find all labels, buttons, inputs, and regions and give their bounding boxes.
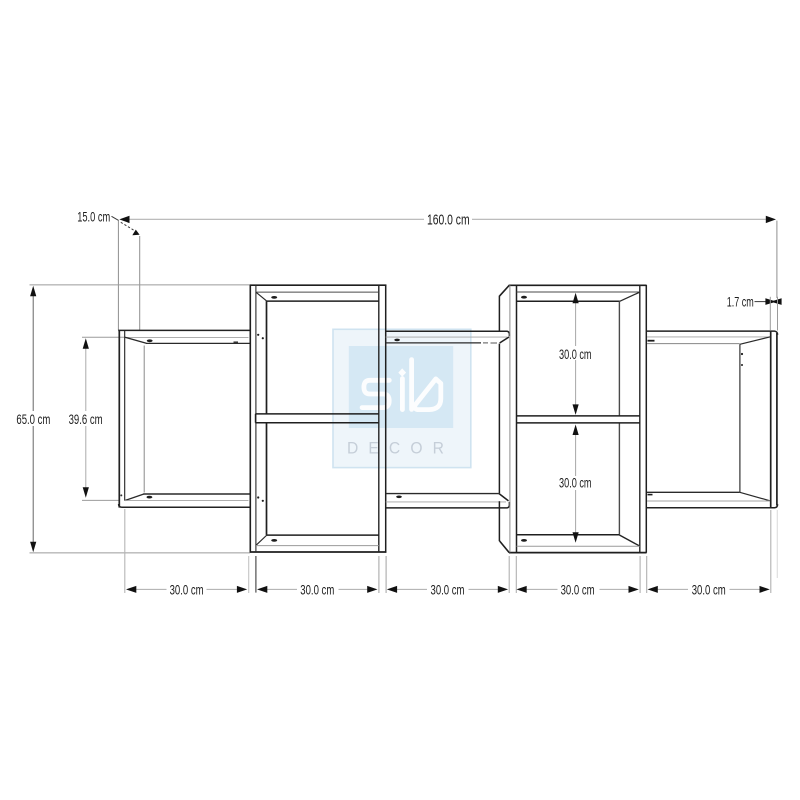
svg-text:30.0 cm: 30.0 cm (431, 583, 465, 598)
svg-text:1.7 cm: 1.7 cm (727, 294, 754, 309)
svg-text:160.0 cm: 160.0 cm (427, 211, 470, 228)
svg-text:15.0 cm: 15.0 cm (77, 208, 110, 224)
svg-text:DECOR: DECOR (347, 439, 454, 458)
svg-text:30.0 cm: 30.0 cm (559, 347, 592, 363)
svg-text:39.6 cm: 39.6 cm (69, 412, 103, 428)
svg-text:65.0 cm: 65.0 cm (16, 412, 50, 428)
svg-text:30.0 cm: 30.0 cm (561, 583, 595, 598)
svg-text:30.0 cm: 30.0 cm (300, 583, 334, 598)
svg-text:30.0 cm: 30.0 cm (559, 476, 592, 492)
svg-text:30.0 cm: 30.0 cm (692, 583, 726, 598)
svg-text:30.0 cm: 30.0 cm (170, 583, 204, 598)
